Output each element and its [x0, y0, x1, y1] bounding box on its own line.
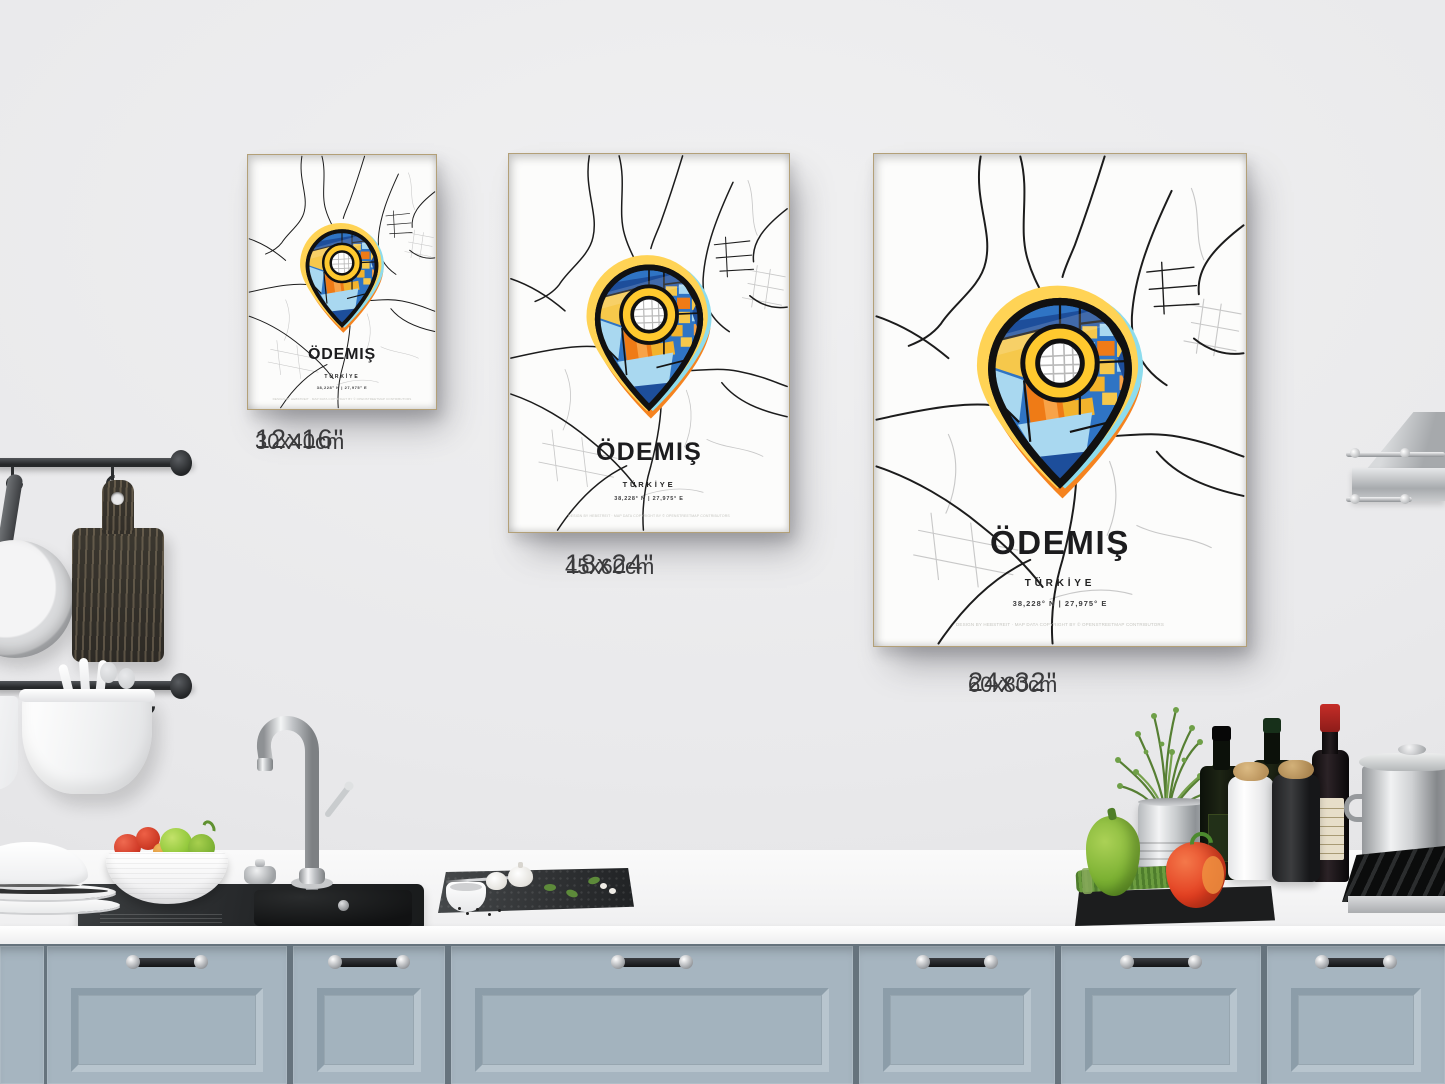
poster-24x32: ÖDEMIŞ TÜRKİYE 38,228° N | 27,975° E DES… — [873, 153, 1247, 647]
poster-print: ÖDEMIŞ TÜRKİYE 38,228° N | 27,975° E DES… — [874, 154, 1246, 646]
size-cm: 45x60cm — [565, 554, 654, 580]
poster-title: ÖDEMIŞ — [509, 438, 789, 467]
peppercorn — [498, 909, 501, 912]
range-hood-chimney — [1366, 412, 1445, 470]
sink-basin — [254, 890, 412, 926]
poster-map-art — [509, 154, 789, 532]
poster-coordinates: 38,228° N | 27,975° E — [509, 496, 789, 502]
poster-print: ÖDEMIŞ TÜRKİYE 38,228° N | 27,975° E DES… — [509, 154, 789, 532]
rail-knob — [1400, 494, 1410, 504]
peppercorn — [476, 908, 479, 911]
poster-subtitle: TÜRKİYE — [874, 578, 1246, 589]
poster-subtitle: TÜRKİYE — [509, 480, 789, 489]
size-cm: 30x40cm — [255, 429, 344, 455]
poster-map-art — [248, 155, 436, 409]
door-panel — [883, 988, 1031, 1072]
garlic-clove — [609, 888, 616, 894]
sink-drain — [338, 900, 349, 911]
pepper-grinder-black — [1272, 774, 1320, 882]
garlic-bulb — [486, 872, 507, 890]
poster-coordinates: 38,228° N | 27,975° E — [874, 599, 1246, 608]
cabinet-handle — [1129, 958, 1193, 967]
peppercorn — [488, 913, 491, 916]
door-panel — [1085, 988, 1237, 1072]
rail-knob — [1350, 448, 1360, 458]
utensil-rail-upper — [0, 458, 192, 467]
garlic-clove — [600, 883, 607, 889]
cabinet-door — [293, 946, 445, 1084]
range-hood-rail — [1346, 452, 1445, 457]
cabinet-stile — [0, 946, 44, 1084]
hanging-cutting-board — [72, 528, 164, 662]
poster-subtitle: TÜRKİYE — [248, 374, 436, 380]
poster-print: ÖDEMIŞ TÜRKİYE 38,228° N | 27,975° E DES… — [248, 155, 436, 409]
poster-18x24: ÖDEMIŞ TÜRKİYE 38,228° N | 27,975° E DES… — [508, 153, 790, 533]
poster-title: ÖDEMIŞ — [874, 524, 1246, 562]
cabinet-handle — [337, 958, 401, 967]
wine-bottle-label — [1317, 798, 1344, 860]
soap-dispenser — [244, 866, 276, 884]
poster-coordinates: 38,228° N | 27,975° E — [248, 385, 436, 390]
poster-credit: DESIGN BY HEBSTREIT · MAP DATA COPYRIGHT… — [248, 397, 436, 401]
peppercorn — [466, 912, 469, 915]
size-cm: 60x80cm — [968, 672, 1057, 698]
pepper-grinder-white — [1228, 776, 1274, 880]
poster-credit: DESIGN BY HEBSTREIT · MAP DATA COPYRIGHT… — [509, 514, 789, 518]
garlic-bulb — [508, 866, 533, 887]
cabinet-handle — [925, 958, 989, 967]
poster-title: ÖDEMIŞ — [248, 346, 436, 364]
counter-front-edge — [0, 926, 1445, 944]
herb-sprig — [544, 884, 556, 891]
hanging-bucket-partial — [0, 696, 18, 790]
rail-knob — [1350, 494, 1360, 504]
cabinet-door — [859, 946, 1055, 1084]
poster-map-art — [874, 154, 1246, 646]
door-panel — [317, 988, 421, 1072]
rail-finial — [170, 450, 192, 476]
rail-finial — [170, 673, 192, 699]
peppercorn — [458, 907, 461, 910]
cabinet-door — [1061, 946, 1261, 1084]
faucet-lever — [328, 788, 348, 814]
cabinet-door — [1267, 946, 1445, 1084]
door-panel — [71, 988, 263, 1072]
spoon — [100, 662, 117, 683]
cabinet-door-sink — [451, 946, 853, 1084]
cabinet-run — [0, 944, 1445, 1084]
hanging-utensil-bucket — [22, 694, 152, 794]
rail-knob — [1400, 448, 1410, 458]
stove-base — [1348, 896, 1445, 913]
spoon — [118, 668, 135, 689]
poster-credit: DESIGN BY HEBSTREIT · MAP DATA COPYRIGHT… — [874, 622, 1246, 627]
door-panel — [475, 988, 829, 1072]
cabinet-handle — [135, 958, 199, 967]
door-panel — [1291, 988, 1421, 1072]
poster-12x16: ÖDEMIŞ TÜRKİYE 38,228° N | 27,975° E DES… — [247, 154, 437, 410]
hanging-pan — [0, 540, 74, 658]
cabinet-handle — [1324, 958, 1388, 967]
wine-bottle-cap — [1320, 704, 1340, 732]
cabinet-handle — [620, 958, 684, 967]
kitchen-poster-mockup-scene: ÖDEMIŞ TÜRKİYE 38,228° N | 27,975° E DES… — [0, 0, 1445, 1084]
cabinet-door — [47, 946, 287, 1084]
